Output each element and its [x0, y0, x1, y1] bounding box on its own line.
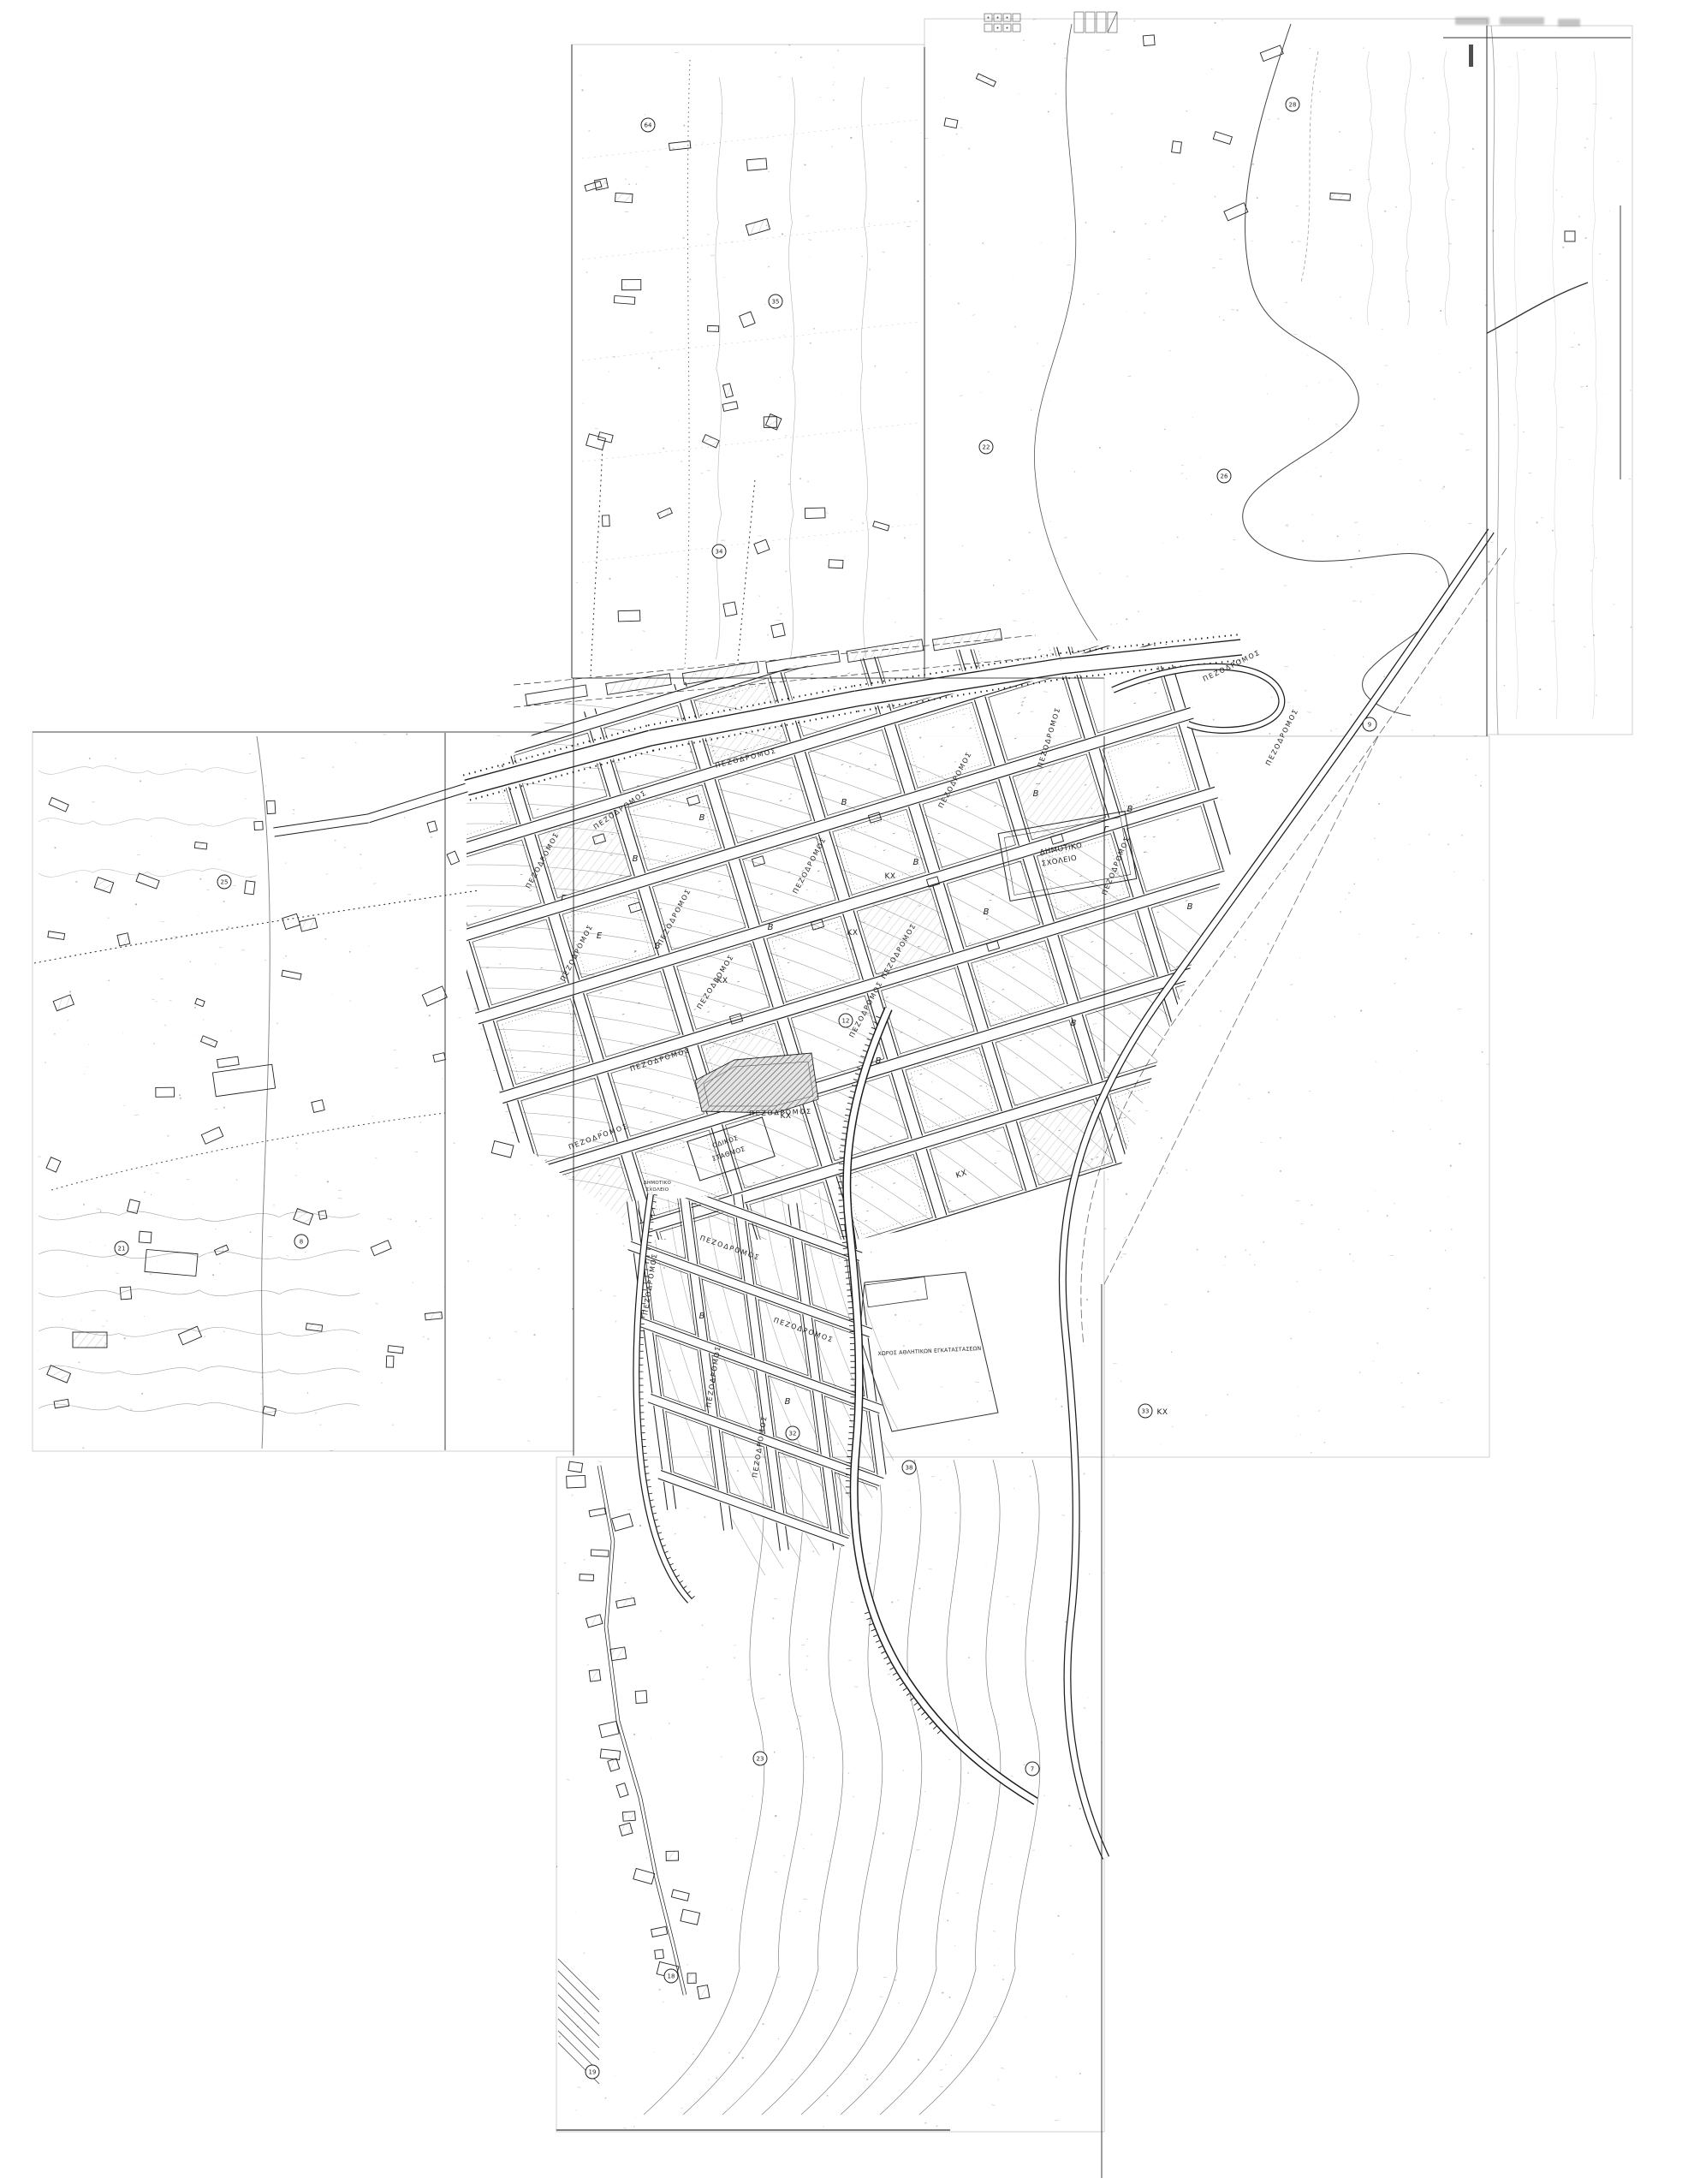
block-number: 26	[1221, 473, 1228, 479]
block-number: 8	[300, 1238, 303, 1245]
block-number: 21	[118, 1245, 126, 1252]
block-letter: Β	[1033, 789, 1039, 799]
block-number: 32	[789, 1430, 797, 1437]
block-number: 35	[772, 298, 780, 305]
public-space-label: ΚΧ	[780, 1112, 791, 1121]
block-letter: Β	[876, 1056, 882, 1066]
block-letter: Β	[1187, 902, 1193, 912]
block-letter: Β	[1127, 805, 1133, 814]
block-letter: Β	[699, 813, 705, 823]
public-space-label: ΚΧ	[884, 872, 895, 881]
block-letter: Β	[699, 1312, 705, 1321]
block-number: 18	[668, 1973, 675, 1979]
public-space-label: ΚΧ	[1156, 1408, 1168, 1417]
block-number: 7	[1031, 1765, 1034, 1772]
block-number: 12	[842, 1017, 850, 1024]
block-letter: Β	[785, 1397, 791, 1407]
public-space-label: ΚΧ	[716, 977, 728, 985]
block-number: 33	[1142, 1407, 1150, 1414]
block-number: 25	[221, 878, 229, 885]
block-number: 9	[1368, 721, 1371, 728]
school-label-small: ΔΗΜΟΤΙΚΟ	[644, 1181, 672, 1186]
block-number: 23	[757, 1755, 764, 1762]
block-letter: Β	[841, 798, 847, 807]
block-number: 28	[1289, 101, 1297, 108]
school-label-small: ΣΧΟΛΕΙΟ	[646, 1187, 669, 1193]
block-letter: Β	[655, 942, 661, 951]
block-number: 64	[645, 122, 652, 128]
block-number: 22	[983, 443, 990, 450]
block-number: 34	[716, 548, 723, 555]
block-letter: Ε	[597, 931, 603, 941]
block-letter: Β	[768, 923, 774, 932]
sheet-mosaic	[33, 19, 1632, 2132]
scanned-map-page: ΠΕΖΟΔΡΟΜΟΣΠΕΖΟΔΡΟΜΟΣΠΕΖΟΔΡΟΜΟΣΠΕΖΟΔΡΟΜΟΣ…	[0, 0, 1700, 2184]
block-letter: Β	[633, 854, 639, 864]
public-space-label: ΚΧ	[847, 929, 858, 937]
block-letter: Β	[984, 908, 990, 917]
map-svg: ΠΕΖΟΔΡΟΜΟΣΠΕΖΟΔΡΟΜΟΣΠΕΖΟΔΡΟΜΟΣΠΕΖΟΔΡΟΜΟΣ…	[0, 0, 1700, 2184]
block-number: 19	[589, 2068, 597, 2075]
block-letter: Β	[913, 858, 919, 867]
block-letter: Β	[1071, 1019, 1077, 1028]
block-number: 38	[906, 1464, 913, 1471]
